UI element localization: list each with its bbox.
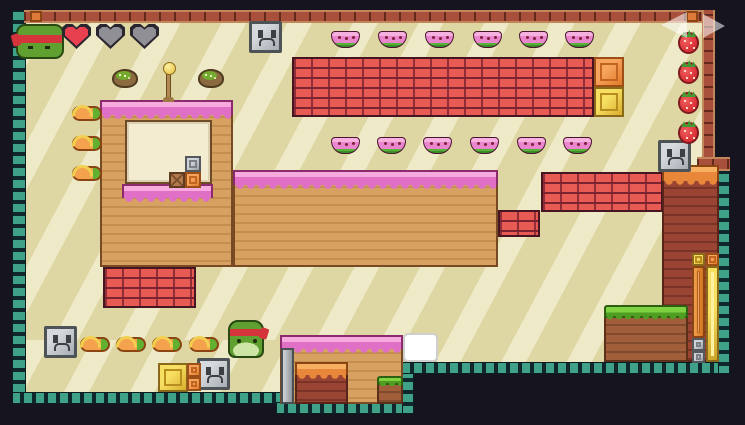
game-viewport — [0, 0, 745, 425]
next-arrow[interactable] — [703, 14, 725, 38]
nav-arrows — [0, 0, 745, 425]
prev-arrow[interactable] — [661, 12, 687, 38]
